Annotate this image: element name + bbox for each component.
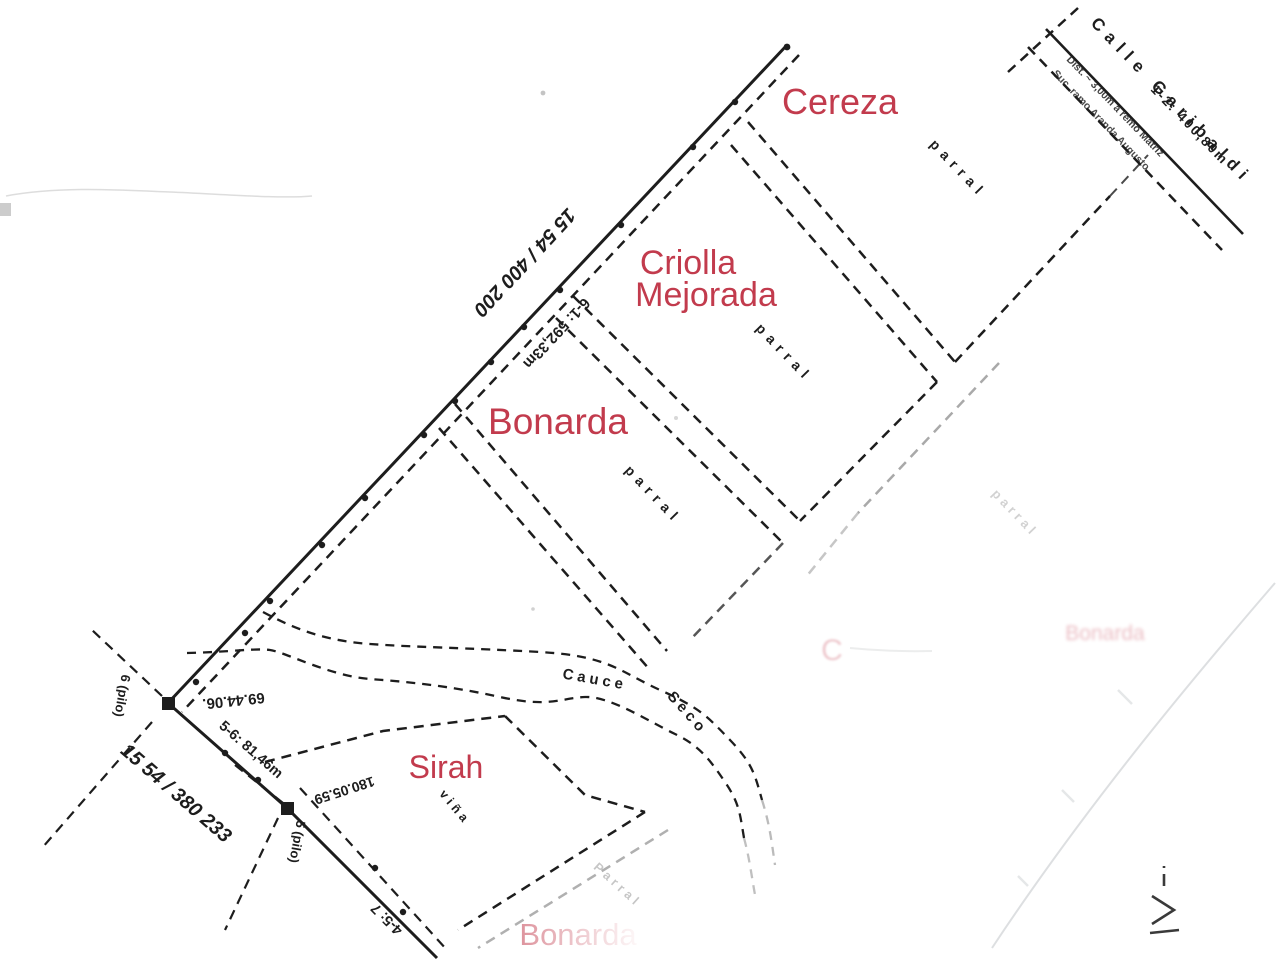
- cauce-seco-word-1: Cauce: [561, 666, 628, 694]
- parcel-label-bonarda-bottom: Bonarda: [519, 917, 637, 952]
- crop-label-parral-bonarda: parral: [622, 462, 686, 527]
- parcel-label-bonarda: Bonarda: [488, 401, 628, 442]
- boundary-ref-upper: 15 54 / 400 200: [469, 204, 580, 321]
- scan-artifacts: [0, 91, 678, 611]
- survey-point-dot: [618, 222, 624, 228]
- scan-speck: [531, 607, 535, 611]
- parcel-labels: Cereza Criolla Mejorada Bonarda Sirah Bo…: [409, 81, 899, 952]
- road-boundary-line-6-1: [168, 45, 787, 703]
- sirah-boundary-se: [458, 812, 645, 930]
- scan-smudge-line: [6, 190, 312, 197]
- crop-label-vina-sirah: viña: [437, 787, 474, 827]
- survey-point-dot: [242, 630, 248, 636]
- scan-speck: [674, 416, 678, 420]
- boundary-length-lower: 5-6: 81,46m: [216, 718, 286, 782]
- boundary-ref-lower: 15 54 / 380 233: [116, 740, 235, 848]
- survey-map: C Bonarda: [0, 0, 1280, 960]
- road-parallel-dashed: [182, 55, 799, 712]
- survey-point-dot: [400, 909, 406, 915]
- node-6-point-label: 6 (pilo): [111, 673, 133, 718]
- cauce-upper-faint: [762, 800, 775, 865]
- backline-bonarda: [690, 543, 783, 640]
- node-5-marker: [281, 802, 294, 815]
- survey-point-dot: [690, 144, 696, 150]
- bleed-letter: C: [821, 634, 843, 667]
- survey-point-dot: [557, 287, 563, 293]
- parcel-label-sirah: Sirah: [409, 749, 484, 785]
- survey-annotations: Calle Garibaldi 1-2: 400,80m Dist. ~ 3,0…: [111, 14, 1256, 938]
- survey-point-dot: [732, 99, 738, 105]
- sirah-boundary-ne: [505, 716, 645, 812]
- survey-point-dot: [421, 432, 427, 438]
- survey-point-dot: [784, 44, 791, 51]
- crop-label-parral-east-faint: parral: [989, 486, 1042, 540]
- parcel-label-cereza: Cereza: [782, 81, 899, 122]
- divider-cereza-criolla-2: [731, 145, 937, 382]
- node-5-point-label: 5 (pilo): [286, 819, 308, 864]
- bleed-through-layer: C Bonarda: [821, 583, 1275, 948]
- backline-east-column-faint: [858, 363, 999, 513]
- road-parallel-dashed-south: [300, 788, 447, 950]
- parcel-label-mejorada: Mejorada: [635, 276, 777, 314]
- scan-speck: [541, 91, 546, 96]
- survey-point-dot: [521, 324, 527, 330]
- north-arrow: [1150, 866, 1179, 933]
- angle-at-node-5: 180.05.59: [312, 774, 376, 809]
- cauce-lower-faint: [744, 838, 756, 900]
- survey-point-dot: [267, 598, 273, 604]
- crop-label-parral-criolla: parral: [753, 320, 817, 385]
- angle-at-node-6: 69.44.06.: [201, 689, 265, 712]
- bleed-fragment-stroke: [850, 648, 932, 651]
- crop-label-parral-cereza: parral: [927, 136, 991, 201]
- node-6-marker: [162, 697, 175, 710]
- survey-lines: [162, 29, 1243, 958]
- boundary-length-bottom: 4-5: 7: [368, 900, 406, 938]
- node6-leader-sw: [42, 722, 152, 848]
- survey-point-dot: [319, 542, 325, 548]
- cauce-seco-word-2: Seco: [664, 688, 711, 738]
- survey-point-dots: [193, 44, 791, 916]
- north-arrow-bar: [1150, 930, 1179, 933]
- survey-point-dot: [488, 359, 494, 365]
- survey-point-dot: [362, 495, 368, 501]
- bleed-fragment-stroke: [1018, 690, 1132, 886]
- survey-point-dot: [193, 679, 199, 685]
- backline-east-column-faint-2: [806, 513, 858, 577]
- divider-cereza-criolla-1: [748, 122, 955, 362]
- north-arrow-chevron: [1152, 896, 1174, 924]
- survey-point-dot: [452, 398, 458, 404]
- node5-leader-sw: [225, 818, 278, 930]
- crop-label-parral-bottom-faint: Parral: [591, 860, 645, 910]
- boundary-length-upper: 6-1: 592,33m: [519, 294, 593, 371]
- scan-edge-mark: [0, 203, 11, 216]
- survey-point-dot: [222, 750, 228, 756]
- backline-cereza: [955, 196, 1110, 362]
- bleed-word: Bonarda: [1065, 622, 1145, 645]
- divider-bonarda-south-2: [439, 428, 650, 670]
